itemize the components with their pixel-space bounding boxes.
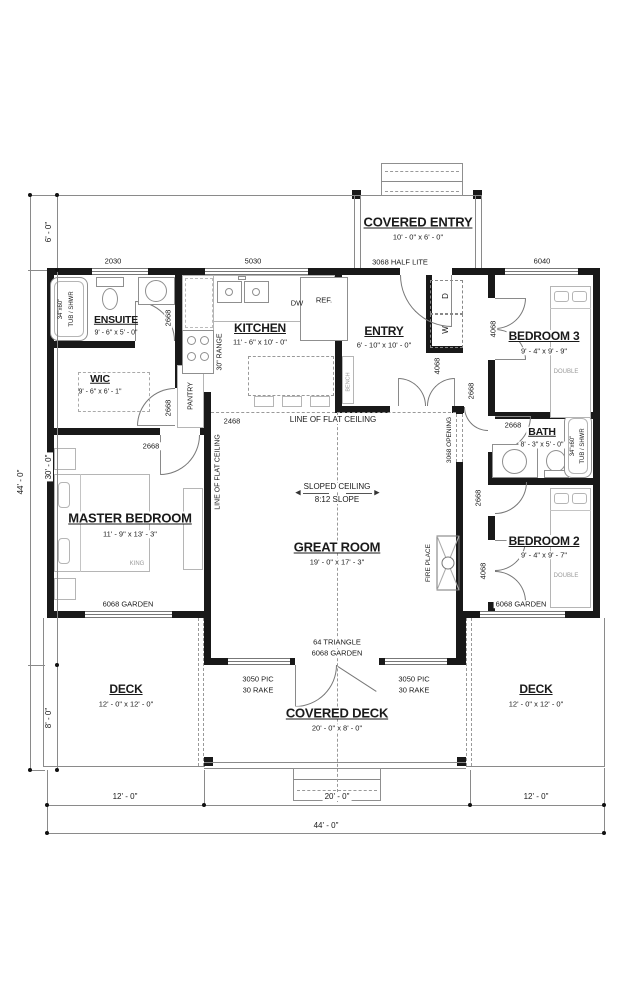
range xyxy=(182,330,214,374)
fridge xyxy=(300,277,348,341)
door-leaf xyxy=(398,378,399,406)
window xyxy=(205,268,308,275)
island xyxy=(248,356,334,396)
stool xyxy=(282,396,302,407)
deck-edge xyxy=(204,762,466,763)
room-title-covered-entry: COVERED ENTRY xyxy=(364,216,473,229)
sink-basin xyxy=(502,449,527,474)
wall xyxy=(488,516,495,540)
drain xyxy=(252,288,260,296)
covered-entry-rail xyxy=(354,195,355,268)
door-leaf xyxy=(137,425,175,426)
opening-dash xyxy=(456,414,457,462)
stool xyxy=(254,396,274,407)
dim-line xyxy=(30,195,31,770)
pillow xyxy=(572,493,587,504)
label-door-2668-hall2: 2668 xyxy=(474,488,482,509)
room-dims-bedroom2: 9' - 4" x 9' - 7" xyxy=(519,551,569,559)
label-king: KING xyxy=(130,561,145,567)
room-title-bath: BATH xyxy=(526,427,558,438)
room-dims-bath: 8' - 3" x 5' - 0" xyxy=(518,442,565,449)
bed-line xyxy=(550,308,591,309)
dim-bottom-vertical: 8' - 0" xyxy=(45,706,53,730)
label-pantry: PANTRY xyxy=(188,382,195,410)
label-door-2668-master: 2668 xyxy=(141,442,162,450)
dim-total-vertical: 44' - 0" xyxy=(17,470,25,495)
dim-ext xyxy=(604,768,605,833)
door-arc xyxy=(427,378,455,406)
room-title-great: GREAT ROOM xyxy=(292,541,383,554)
deck-rail xyxy=(43,766,205,767)
burner xyxy=(200,336,209,345)
wall xyxy=(452,268,505,275)
label-3050-pic-left: 3050 PIC xyxy=(242,675,273,683)
door-leaf xyxy=(495,359,526,360)
room-dims-entry: 6' - 10" x 10' - 0" xyxy=(357,341,411,349)
room-title-kitchen: KITCHEN xyxy=(234,322,286,334)
pillow xyxy=(572,291,587,302)
label-window-6040: 6040 xyxy=(534,257,551,265)
dim-line xyxy=(47,833,604,834)
label-dryer: D xyxy=(442,293,450,299)
door-arc xyxy=(160,435,200,475)
window xyxy=(228,658,290,665)
deck-joint xyxy=(203,618,204,766)
dim-mid-vertical: 30' - 0" xyxy=(45,453,53,482)
door-arc xyxy=(495,298,526,329)
opening-dash xyxy=(462,414,463,462)
dim-tick xyxy=(45,831,49,835)
label-bench: BENCH xyxy=(346,372,352,391)
dim-line xyxy=(57,195,58,770)
label-flat-ceiling-v: LINE OF FLAT CEILING xyxy=(215,432,222,512)
room-dims-deck-right: 12' - 0" x 12' - 0" xyxy=(509,700,563,708)
door-leaf xyxy=(495,416,531,417)
room-title-covered-deck: COVERED DECK xyxy=(284,707,390,720)
label-door-4068-closet: 4068 xyxy=(433,356,441,377)
room-title-bedroom3: BEDROOM 3 xyxy=(507,330,582,342)
room-title-ensuite: ENSUITE xyxy=(94,315,138,326)
dim-tick xyxy=(55,663,59,667)
dim-tick xyxy=(55,268,59,272)
fireplace xyxy=(436,535,460,591)
slope-arrow-left: ◀ xyxy=(295,490,300,497)
room-dims-deck-left: 12' - 0" x 12' - 0" xyxy=(99,700,153,708)
dim-center-horizontal: 20' - 0" xyxy=(323,793,352,801)
bed-double xyxy=(550,488,591,608)
dim-top-vertical: 6' - 0" xyxy=(45,220,53,244)
window xyxy=(85,611,172,618)
dim-line xyxy=(47,805,604,806)
dim-tick xyxy=(55,768,59,772)
wall xyxy=(565,611,600,618)
covered-entry-rail xyxy=(475,195,476,268)
label-tub-type-bath: TUB / SHWR xyxy=(580,428,586,463)
label-30-rake-right: 30 RAKE xyxy=(399,686,430,694)
window xyxy=(480,611,565,618)
pillow xyxy=(58,482,70,508)
dim-tick xyxy=(468,803,472,807)
burner xyxy=(187,336,196,345)
room-title-bedroom2: BEDROOM 2 xyxy=(507,535,582,547)
covered-entry-rail xyxy=(481,195,482,268)
wall xyxy=(488,268,495,298)
label-half-lite: 3068 HALF LITE xyxy=(372,258,428,266)
dim-ext xyxy=(28,665,45,666)
dim-tick xyxy=(28,768,32,772)
dim-ext xyxy=(47,770,48,833)
floor-plan: COVERED ENTRY 10' - 0" x 6' - 0" ENSUITE… xyxy=(0,0,640,1000)
wall xyxy=(308,268,400,275)
room-title-deck-right: DECK xyxy=(519,683,552,695)
wall xyxy=(47,611,85,618)
slope-arrow-line xyxy=(303,493,329,494)
bed-line xyxy=(550,510,591,511)
label-6068-garden-center: 6068 GARDEN xyxy=(310,649,365,657)
dim-tick xyxy=(202,803,206,807)
label-window-6068-bedroom2: 6068 GARDEN xyxy=(494,600,549,608)
room-title-deck-left: DECK xyxy=(109,683,142,695)
label-door-4068-bedroom3: 4068 xyxy=(489,319,497,340)
dresser xyxy=(183,488,203,570)
door-arc xyxy=(398,378,426,406)
label-64-triangle: 64 TRIANGLE xyxy=(311,638,363,646)
label-30-rake-left: 30 RAKE xyxy=(243,686,274,694)
dim-ext xyxy=(28,270,47,271)
wall xyxy=(47,341,135,348)
room-dims-bedroom3: 9' - 4" x 9' - 9" xyxy=(519,347,569,355)
burner xyxy=(200,352,209,361)
pillow xyxy=(554,291,569,302)
label-washer: W xyxy=(442,326,450,334)
toilet-bowl xyxy=(546,450,566,472)
label-opening-2468: 2468 xyxy=(222,417,243,425)
step-line xyxy=(385,171,459,172)
dim-ext xyxy=(204,770,205,805)
label-tub-size: 34"x60" xyxy=(58,299,64,320)
label-opening-3068: 3068 OPENING xyxy=(447,415,454,465)
room-dims-covered-entry: 10' - 0" x 6' - 0" xyxy=(393,233,443,241)
step-line xyxy=(385,191,459,192)
wall xyxy=(47,428,160,435)
label-tub-type: TUB / SHWR xyxy=(69,291,75,326)
door-arc xyxy=(495,482,527,514)
window xyxy=(505,268,578,275)
dim-tick xyxy=(602,803,606,807)
label-3050-pic-right: 3050 PIC xyxy=(398,675,429,683)
label-window-6068-master: 6068 GARDEN xyxy=(101,600,156,608)
door-leaf xyxy=(295,665,296,707)
deck-rail xyxy=(43,618,44,766)
covered-entry-rail xyxy=(360,195,361,268)
pillow xyxy=(554,493,569,504)
door-leaf xyxy=(495,298,526,299)
ridge-line xyxy=(337,412,338,802)
dim-ext xyxy=(30,195,356,196)
wall xyxy=(456,406,463,414)
burner xyxy=(187,352,196,361)
window xyxy=(385,658,447,665)
toilet-bowl xyxy=(102,288,118,310)
dim-ext xyxy=(470,770,471,805)
wall xyxy=(290,658,295,665)
dim-tick xyxy=(45,803,49,807)
label-slope: 8:12 SLOPE xyxy=(313,496,361,504)
door-arc xyxy=(295,665,337,707)
label-double-bedroom3: DOUBLE xyxy=(554,369,579,375)
deck-rail xyxy=(604,618,605,766)
room-title-entry: ENTRY xyxy=(364,325,403,337)
dim-total-horizontal: 44' - 0" xyxy=(312,822,341,830)
label-tub-size-bath: 34"x60" xyxy=(570,436,576,457)
room-dims-ensuite: 9' - 6" x 5' - 0" xyxy=(94,330,137,337)
deck-rail xyxy=(466,766,605,767)
label-door-2668-bath: 2668 xyxy=(503,421,524,429)
label-door-2668-wic: 2668 xyxy=(164,398,172,419)
slope-arrow-line xyxy=(346,493,372,494)
step-line xyxy=(381,181,463,182)
room-dims-kitchen: 11' - 6" x 10' - 0" xyxy=(233,338,287,346)
pillow xyxy=(58,538,70,564)
room-dims-great: 19' - 0" x 17' - 3" xyxy=(308,558,366,566)
dim-tick xyxy=(602,831,606,835)
stool xyxy=(310,396,330,407)
dim-tick xyxy=(28,193,32,197)
wall xyxy=(488,360,495,416)
faucet xyxy=(238,276,246,280)
door-leaf xyxy=(454,378,455,406)
room-title-master: MASTER BEDROOM xyxy=(66,512,194,525)
drain xyxy=(225,288,233,296)
door-arc xyxy=(495,571,526,602)
slope-arrow-right: ▶ xyxy=(374,490,379,497)
label-fireplace: FIRE PLACE xyxy=(426,544,433,582)
label-door-2668-ensuite: 2668 xyxy=(164,308,172,329)
toilet-tank xyxy=(96,277,124,287)
window xyxy=(92,268,148,275)
label-dw: DW xyxy=(291,299,304,307)
wall xyxy=(593,268,600,618)
room-dims-wic: 9' - 6" x 6' - 1" xyxy=(78,389,121,396)
label-door-2668-hall: 2668 xyxy=(467,381,475,402)
dim-left-horizontal: 12' - 0" xyxy=(111,793,140,801)
flat-ceiling-line xyxy=(211,412,456,413)
label-flat-ceiling-h: LINE OF FLAT CEILING xyxy=(288,416,378,424)
room-dims-covered-deck: 20' - 0" x 8' - 0" xyxy=(310,724,364,732)
label-double-bedroom2: DOUBLE xyxy=(554,573,579,579)
door-arc xyxy=(464,407,488,431)
deck-joint xyxy=(466,618,467,766)
label-sloped-ceiling: SLOPED CEILING xyxy=(302,483,373,491)
deck-joint xyxy=(471,618,472,766)
door-leaf-angled xyxy=(337,666,376,692)
room-title-wic: WIC xyxy=(90,374,110,385)
label-window-5030: 5030 xyxy=(245,257,262,265)
wall xyxy=(204,392,211,665)
deck-joint xyxy=(198,618,199,766)
dim-tick xyxy=(55,193,59,197)
room-dims-master: 11' - 9" x 13' - 3" xyxy=(101,530,159,538)
upper-cabinet xyxy=(185,278,213,328)
sink-basin xyxy=(145,280,167,302)
label-window-2030: 2030 xyxy=(105,257,122,265)
label-door-4068-bedroom2: 4068 xyxy=(479,561,487,582)
label-range: 30" RANGE xyxy=(217,331,224,372)
door-leaf xyxy=(160,435,161,475)
label-ref: REF. xyxy=(316,296,332,304)
dim-right-horizontal: 12' - 0" xyxy=(522,793,551,801)
